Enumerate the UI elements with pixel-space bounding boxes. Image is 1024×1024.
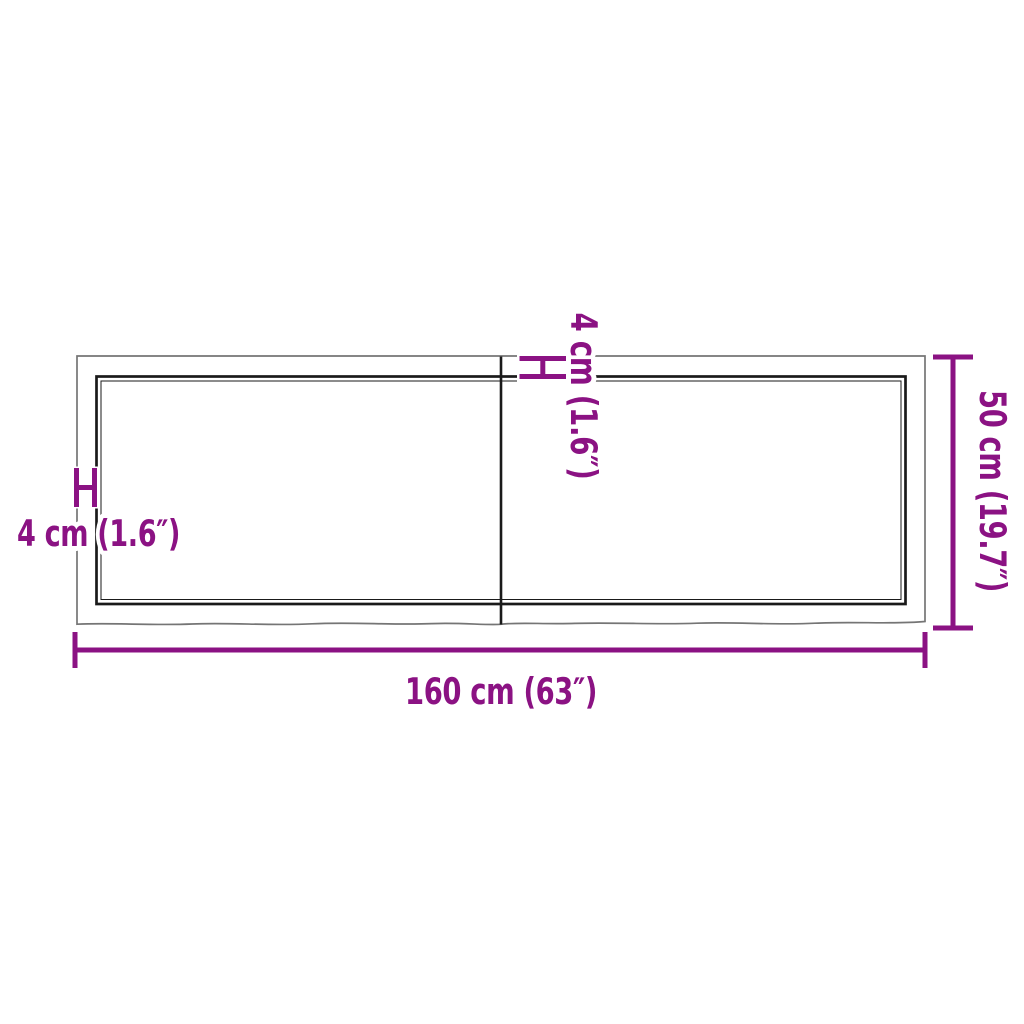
left-thickness-label: 4 cm (1.6″) [17,512,180,555]
dimension-diagram-canvas: 160 cm (63″) 50 cm (19.7″) 4 cm (1.6″) 4… [0,0,1024,1024]
depth-label: 50 cm (19.7″) [971,390,1014,592]
top-thickness-label: 4 cm (1.6″) [562,313,605,480]
width-dimension-line [75,632,925,668]
width-label: 160 cm (63″) [405,670,597,713]
dimension-diagram: 160 cm (63″) 50 cm (19.7″) 4 cm (1.6″) 4… [0,0,1024,1024]
depth-dimension-line [933,357,973,628]
